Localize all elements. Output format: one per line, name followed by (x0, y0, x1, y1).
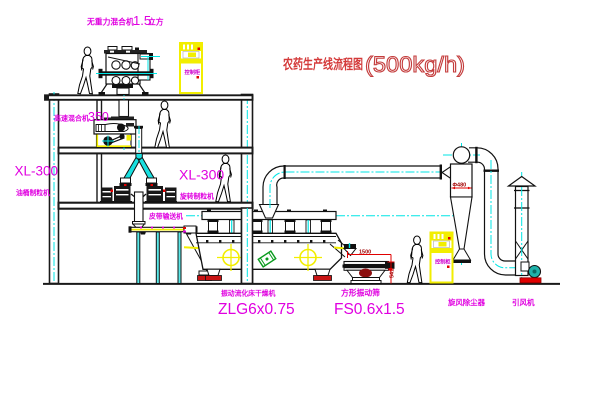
svg-text:旋风除尘器: 旋风除尘器 (447, 298, 486, 307)
svg-text:引风机: 引风机 (512, 297, 535, 307)
svg-text:立方: 立方 (148, 17, 164, 27)
svg-text:FS0.6x1.5: FS0.6x1.5 (334, 301, 405, 318)
svg-text:方形振动筛: 方形振动筛 (341, 288, 380, 298)
svg-text:XL-300: XL-300 (15, 164, 59, 179)
svg-text:振动流化床干燥机: 振动流化床干燥机 (221, 289, 276, 298)
svg-text:1500: 1500 (359, 250, 371, 256)
svg-text:皮带输送机: 皮带输送机 (148, 212, 183, 221)
svg-text:(500kg/h): (500kg/h) (365, 52, 465, 77)
svg-text:旋转制粒机: 旋转制粒机 (179, 192, 214, 201)
svg-text:350: 350 (88, 110, 109, 124)
svg-text:高速混合机: 高速混合机 (54, 114, 89, 123)
svg-text:Φ480: Φ480 (453, 183, 467, 189)
svg-text:ZLG6x0.75: ZLG6x0.75 (218, 301, 295, 318)
svg-text:XL-300: XL-300 (179, 167, 224, 183)
svg-text:油桶制粒机: 油桶制粒机 (16, 188, 50, 197)
svg-text:无重力混合机: 无重力混合机 (86, 17, 134, 27)
svg-text:农药生产线流程图: 农药生产线流程图 (282, 56, 363, 72)
